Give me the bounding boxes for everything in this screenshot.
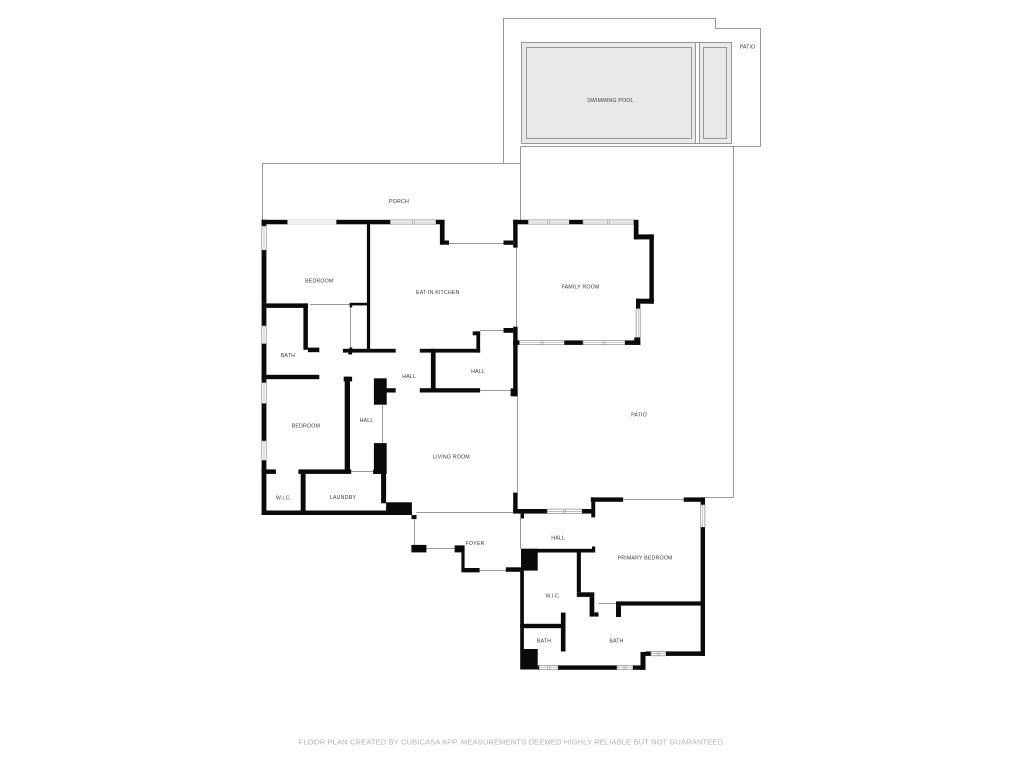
- svg-text:BEDROOM: BEDROOM: [292, 424, 320, 430]
- svg-text:HALL: HALL: [471, 369, 485, 375]
- svg-text:SWIMMING POOL: SWIMMING POOL: [587, 98, 633, 104]
- svg-text:FAMILY ROOM: FAMILY ROOM: [562, 285, 600, 291]
- svg-text:BATH: BATH: [537, 639, 551, 645]
- svg-text:PRIMARY BEDROOM: PRIMARY BEDROOM: [618, 556, 673, 562]
- svg-text:PORCH: PORCH: [389, 199, 409, 205]
- svg-text:FLOOR PLAN CREATED BY CUBICASA: FLOOR PLAN CREATED BY CUBICASA APP. MEAS…: [299, 737, 726, 746]
- svg-text:BATH: BATH: [281, 353, 295, 359]
- svg-text:HALL: HALL: [551, 536, 565, 542]
- svg-text:EAT-IN KITCHEN: EAT-IN KITCHEN: [416, 290, 460, 296]
- svg-text:PATIO: PATIO: [740, 45, 756, 51]
- svg-text:BATH: BATH: [609, 639, 623, 645]
- svg-text:HALL: HALL: [360, 418, 374, 424]
- svg-text:LIVING ROOM: LIVING ROOM: [433, 455, 470, 461]
- svg-text:PATIO: PATIO: [631, 413, 647, 419]
- svg-text:FOYER: FOYER: [466, 541, 485, 547]
- svg-text:BEDROOM: BEDROOM: [305, 278, 333, 284]
- svg-text:W.I.C.: W.I.C.: [545, 594, 560, 600]
- svg-text:W.I.C.: W.I.C.: [276, 496, 291, 502]
- svg-text:HALL: HALL: [402, 374, 416, 380]
- svg-text:LAUNDRY: LAUNDRY: [330, 495, 357, 501]
